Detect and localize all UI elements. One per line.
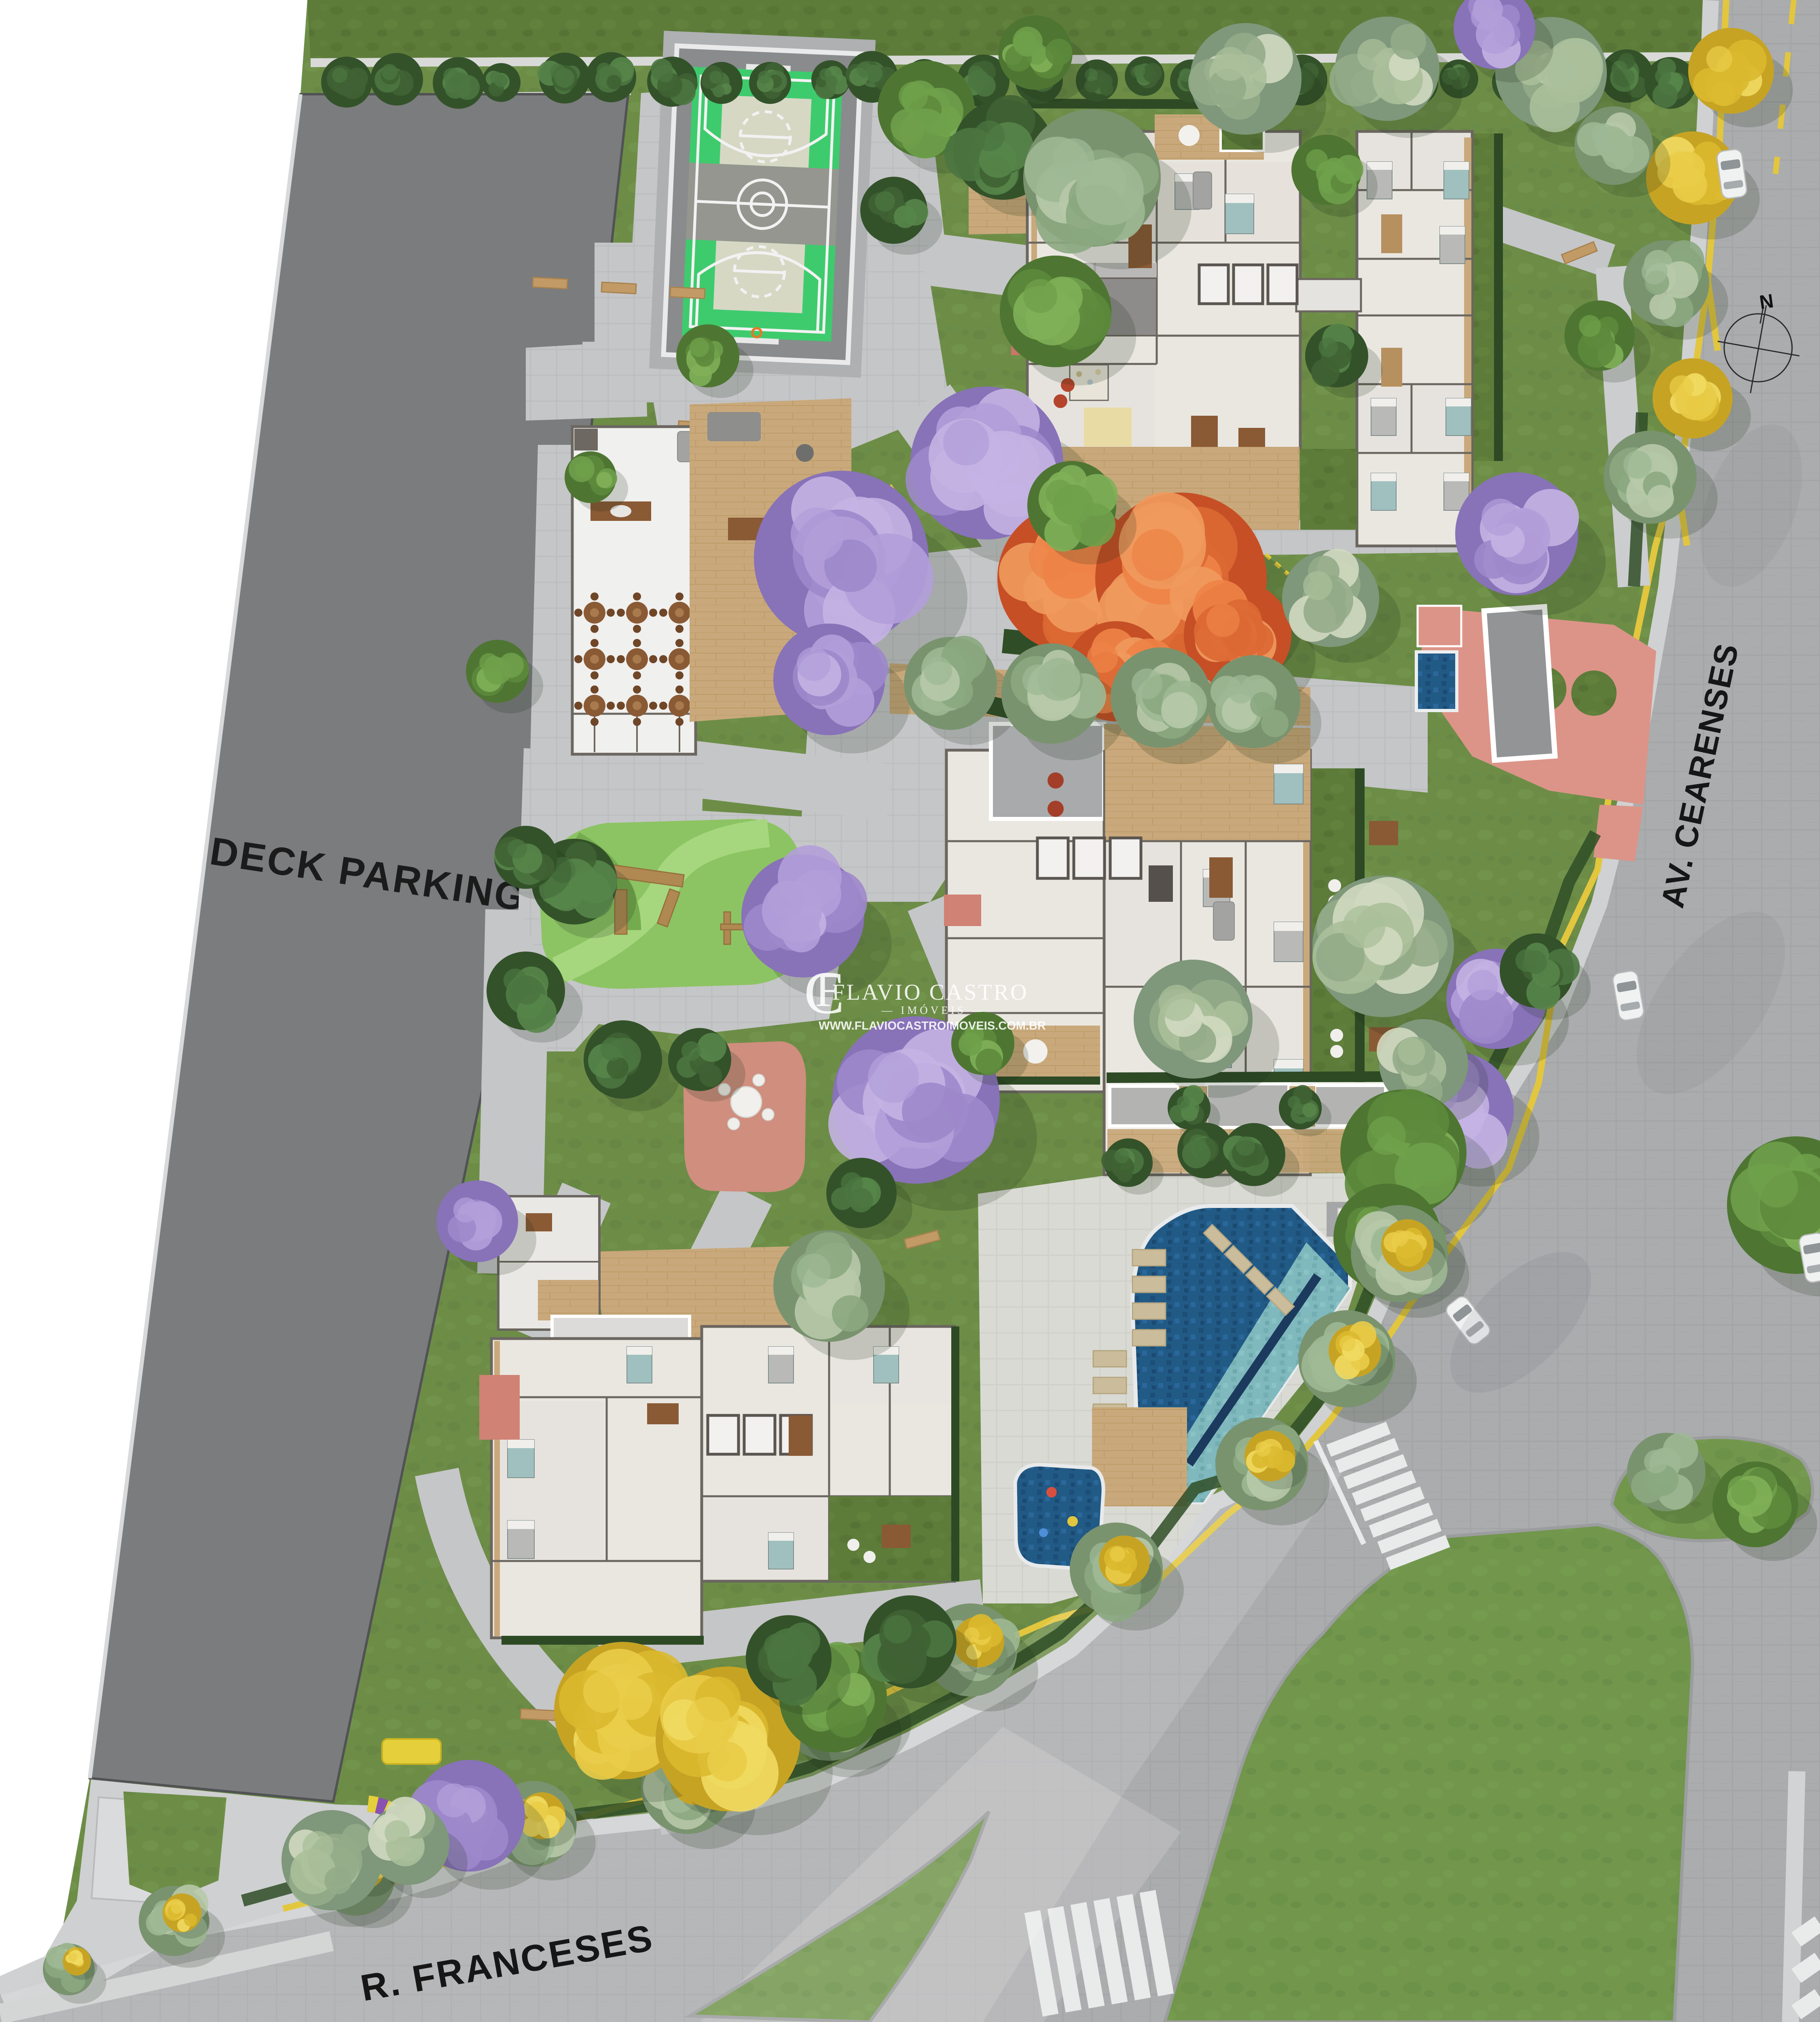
svg-text:WWW.FLAVIOCASTROIMOVEIS.COM.BR: WWW.FLAVIOCASTROIMOVEIS.COM.BR (819, 1019, 1046, 1032)
svg-text:FLAVIO CASTRO: FLAVIO CASTRO (832, 980, 1028, 1005)
svg-text:N: N (1758, 290, 1775, 313)
svg-text:— IMÓVEIS —: — IMÓVEIS — (881, 1004, 986, 1016)
